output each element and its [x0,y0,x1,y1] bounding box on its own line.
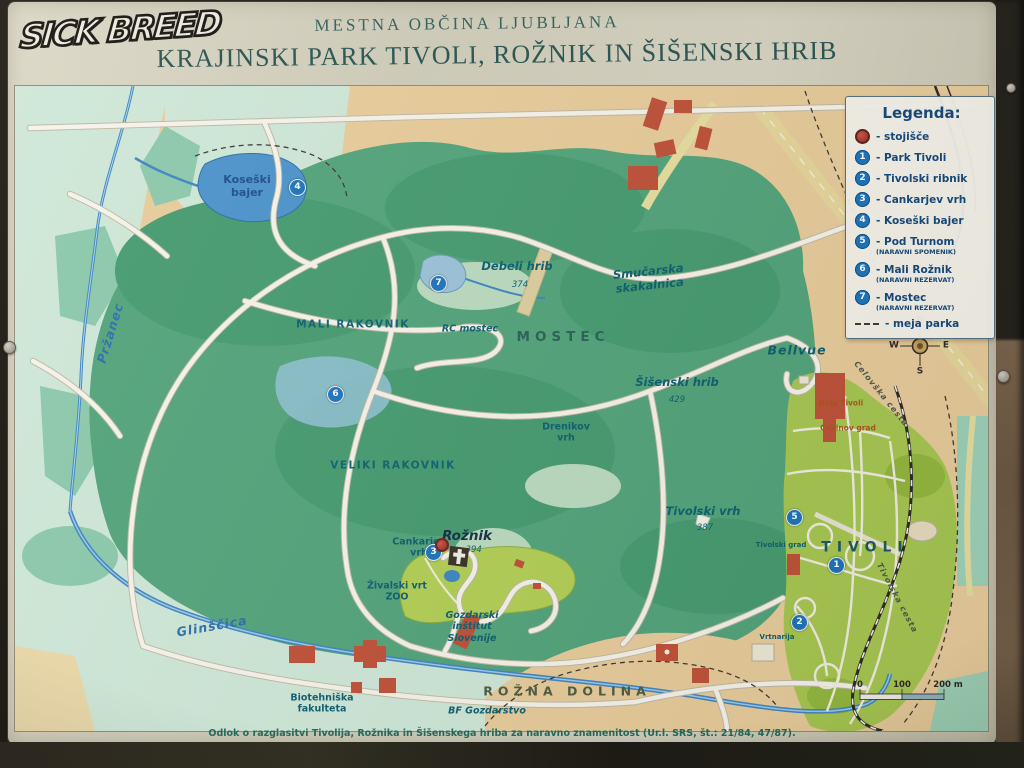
marker-symbol: 2 [855,171,870,186]
legend-box: Legenda: - stojišče1- Park Tivoli2- Tivo… [845,96,995,339]
map-terrain [15,86,988,731]
legend-item-label: - stojišče [876,131,929,143]
photo-scene: SICK BREED MESTNA OBČINA LJUBLJANA KRAJI… [0,0,1024,768]
zoo-pond [444,570,460,582]
legend-item-label: - Pod Turnom [876,236,954,248]
legend-item-sub: (NARAVNI REZERVAT) [876,305,988,312]
legend-item-label: - Koseški bajer [876,215,964,227]
building-white [752,644,774,661]
legend-item: - meja parka [855,318,988,330]
legend-item: 7- Mostec(NARAVNI REZERVAT) [855,290,988,312]
legend-item-label: - meja parka [885,318,959,330]
marker-symbol: 1 [855,150,870,165]
decree-footnote: Odlok o razglasitvi Tivolija, Rožnika in… [8,728,996,739]
legend-title: Legenda: [855,104,988,122]
legend-item-label: - Mostec [876,292,926,304]
stojisce-symbol [855,129,870,144]
legend-item-label: - Tivolski ribnik [876,173,967,185]
marker-symbol: 7 [855,290,870,305]
park-sign: SICK BREED MESTNA OBČINA LJUBLJANA KRAJI… [8,2,996,744]
legend-item-label: - Cankarjev vrh [876,194,966,206]
bolt-top-right [1006,83,1016,93]
legend-item: - stojišče [855,129,988,144]
ground-strip [0,742,1024,768]
park-map: Koseški bajerPržanecDebeli hrib374Smučar… [15,86,988,731]
legend-item: 6- Mali Rožnik(NARAVNI REZERVAT) [855,262,988,284]
boundary-symbol [855,323,879,325]
bolt-right [997,370,1010,383]
wooden-post [996,0,1024,768]
marker-symbol: 6 [855,262,870,277]
legend-item: 5- Pod Turnom(NARAVNI SPOMENIK) [855,234,988,256]
marker-symbol: 3 [855,192,870,207]
legend-item-label: - Park Tivoli [876,152,946,164]
marker-symbol: 4 [855,213,870,228]
legend-item-sub: (NARAVNI SPOMENIK) [876,249,988,256]
legend-item: 4- Koseški bajer [855,213,988,228]
legend-item-label: - Mali Rožnik [876,264,952,276]
legend-item-sub: (NARAVNI REZERVAT) [876,277,988,284]
marker-symbol: 5 [855,234,870,249]
legend-item: 1- Park Tivoli [855,150,988,165]
church-icon [448,546,469,567]
legend-item: 3- Cankarjev vrh [855,192,988,207]
legend-items: - stojišče1- Park Tivoli2- Tivolski ribn… [855,129,988,330]
bolt-left [3,341,16,354]
stojisce-dot [435,538,449,552]
legend-item: 2- Tivolski ribnik [855,171,988,186]
